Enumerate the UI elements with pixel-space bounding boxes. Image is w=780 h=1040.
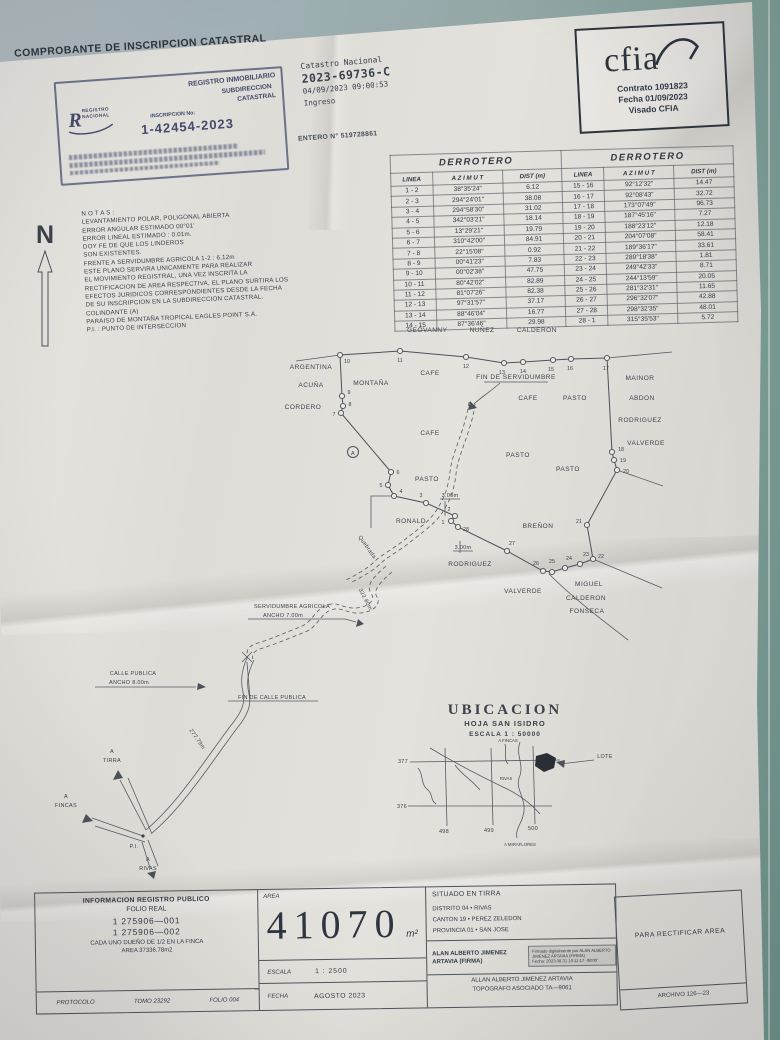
firmante-name2: ARTAVIA (FIRMA) — [432, 956, 528, 966]
notas-block: N O T A S : LEVANTAMIENTO POLAR, POLIGON… — [81, 200, 331, 335]
para-rectificar-label: PARA RECTIFICAR AREA — [617, 927, 743, 941]
cfia-logo-arc — [655, 39, 698, 65]
paper-crease — [0, 535, 780, 635]
footer-area-block: AREA 41070 m² ESCALA 1 : 2500 FECHA AGOS… — [257, 887, 427, 1010]
derrotero-cell: 5.72 — [678, 312, 738, 324]
area-label: AREA — [263, 894, 279, 900]
area-value: 41070 — [266, 901, 402, 948]
footer-rectificar-box: PARA RECTIFICAR AREA ARCHIVO 126—23 — [614, 890, 748, 1011]
finca-number: 1 275906—002 — [36, 925, 258, 938]
folio-real-label: FOLIO REAL — [35, 904, 257, 914]
escala-label: ESCALA — [267, 969, 291, 975]
derrotero-cell: 29.98 — [506, 317, 566, 329]
derrotero-cell: 315°35'53" — [608, 313, 678, 325]
photographed-cadastral-document: { "photo": { "surface_color": "#95a8a7",… — [0, 0, 780, 1040]
logo-r-glyph: R — [67, 109, 83, 132]
background-surface-edge — [768, 0, 770, 1040]
derrotero-cell: 28 - 1 — [566, 315, 608, 327]
col-linea: LINEA — [391, 172, 433, 186]
area-finca: AREA 37336.78m2 — [36, 946, 258, 955]
digital-signature-note: Firmado digitalmente por ALAN ALBERTO JI… — [528, 944, 616, 966]
folio-value: FOLIO 004 — [209, 997, 239, 1003]
fecha-label: FECHA — [268, 994, 288, 1000]
paper-crease — [295, 0, 365, 230]
tomo-value: TOMO 23292 — [134, 998, 170, 1005]
derrotero-table: DERROTERO DERROTERO LINEA A Z I M U T DI… — [390, 145, 739, 332]
fecha-value: AGOSTO 2023 — [314, 992, 366, 1000]
derrotero-cell: 14 - 15 — [395, 320, 437, 332]
footer-table: INFORMACION REGISTRO PUBLICO FOLIO REAL … — [34, 883, 618, 1014]
footer-situado-block: SITUADO EN TIRRA DISTRITO 04 • RIVAS CAN… — [425, 884, 617, 1007]
derrotero-cell: 87°36'46" — [436, 318, 506, 330]
cfia-logo-text: cfia — [603, 40, 660, 80]
topografo-title: TOPOGRAFO ASOCIADO TA—9061 — [428, 983, 617, 995]
protocolo-label: PROTOCOLO — [56, 999, 94, 1006]
area-unit: m² — [406, 929, 418, 940]
registro-nacional-stamp: REGISTRO INMOBILIARIO SUBDIRECCION CATAS… — [54, 66, 290, 186]
provincia-line: PROVINCIA 01 • SAN JOSE — [433, 923, 616, 937]
stamp-org-line3: CATASTRAL — [237, 92, 276, 103]
escala-value: 1 : 2500 — [315, 968, 348, 976]
cfia-logo: cfia — [595, 28, 707, 80]
footer-registro-publico: INFORMACION REGISTRO PUBLICO FOLIO REAL … — [35, 890, 259, 1013]
col-linea: LINEA — [562, 167, 604, 181]
cfia-stamp: cfia Contrato 1091823 Fecha 01/09/2023 V… — [574, 21, 729, 134]
catastro-nacional-block: Catastro Nacional 2023-69736-C 04/09/202… — [300, 54, 393, 108]
